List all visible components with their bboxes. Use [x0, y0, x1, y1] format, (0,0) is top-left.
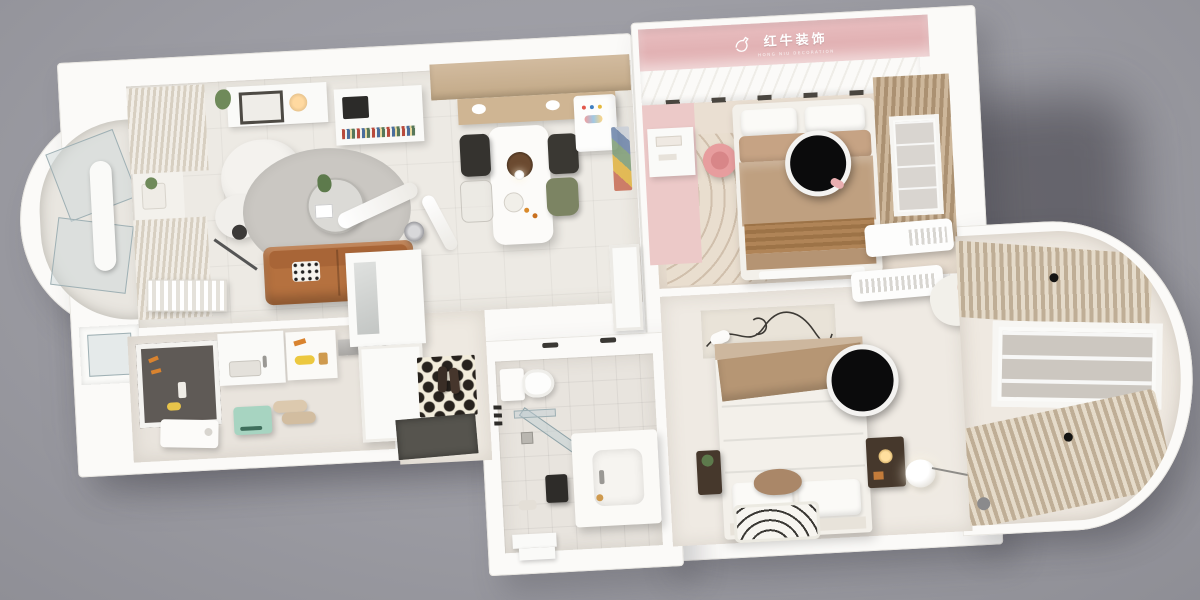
living-curtain-upper — [126, 84, 208, 174]
dining-wall-art — [611, 126, 632, 191]
green-chair — [546, 177, 580, 217]
bay-floor — [955, 225, 1188, 526]
fruit — [524, 208, 529, 213]
fridge-sticker — [584, 115, 602, 124]
heater-unit — [147, 280, 227, 312]
jar — [318, 352, 328, 364]
black-chair — [547, 133, 579, 175]
entry-dark-mat — [395, 413, 478, 460]
towel-roll — [281, 411, 316, 425]
scene-background: 红牛装饰 HONG NIU DECORATION — [0, 0, 1200, 600]
nightstand-left — [696, 450, 722, 495]
plant — [701, 454, 714, 467]
kids-window-frame — [889, 114, 944, 216]
ac-vents — [859, 273, 936, 294]
lemons — [167, 402, 181, 411]
black-chair — [459, 134, 491, 178]
vanity-faucet — [599, 470, 605, 484]
appliance-slot — [240, 426, 262, 431]
carrot — [151, 368, 162, 374]
dining-table — [488, 124, 554, 245]
kids-desk — [647, 127, 695, 177]
bidet-sprayer — [493, 403, 502, 425]
chair-seat — [710, 151, 729, 170]
desk-item — [658, 154, 676, 161]
step — [519, 547, 556, 561]
kitchen-window — [136, 340, 222, 428]
carrot — [148, 356, 159, 364]
bowl — [545, 100, 560, 111]
book — [315, 204, 334, 219]
bull-icon — [733, 36, 752, 55]
laptop — [342, 96, 369, 119]
toilet-tank — [499, 368, 525, 401]
kitchen-counter — [217, 331, 286, 386]
table-lamp-glow — [289, 93, 308, 112]
wall-shelf — [226, 82, 328, 127]
kids-pillow — [740, 107, 797, 136]
entry-console — [345, 249, 426, 347]
ac-vents — [908, 226, 947, 245]
shower-fixture — [545, 474, 568, 503]
book-spines — [342, 125, 416, 139]
shoe — [449, 367, 461, 394]
carrot — [293, 338, 306, 346]
fridge-magnet — [590, 105, 594, 109]
nightstand-lamp — [878, 449, 893, 464]
balcony-door-gap — [133, 172, 185, 221]
sliding-door-handle — [542, 342, 558, 348]
zebra-rug — [733, 501, 821, 543]
nightstand-right — [866, 436, 907, 488]
lips-pillow — [753, 468, 802, 496]
fridge-magnet — [598, 105, 602, 109]
ghost-chair — [460, 180, 494, 224]
entry-patterned-rug — [417, 355, 478, 418]
fruit — [532, 213, 537, 218]
mirror-panel — [354, 262, 380, 335]
floor-drain — [521, 432, 534, 445]
kids-pillow — [804, 104, 865, 133]
bottle — [178, 382, 187, 398]
logo-text: 红牛装饰 — [763, 32, 828, 50]
sliding-door-handle — [600, 337, 616, 343]
bay-curtain-upper — [955, 240, 1154, 330]
hanging-bookshelf — [334, 85, 425, 146]
fridge-magnet — [582, 105, 586, 109]
faucet — [262, 356, 267, 368]
vanity-counter — [571, 429, 662, 527]
desk-keyboard — [656, 136, 682, 147]
apartment-floorplan: 红牛装饰 HONG NIU DECORATION — [0, 0, 1200, 600]
pendant-lamp — [514, 170, 525, 181]
white-appliance — [160, 419, 218, 448]
balcony-lower-pane — [87, 333, 133, 377]
bowl — [472, 104, 487, 115]
door-leaf — [609, 244, 643, 331]
shoe — [438, 366, 447, 392]
nightstand-book — [873, 471, 883, 480]
appliance-dial — [204, 428, 212, 436]
duvet-seam — [723, 432, 863, 441]
kitchen-sink — [229, 360, 262, 378]
bananas — [295, 355, 315, 365]
dotted-pillow — [292, 261, 321, 282]
kids-window-glass — [895, 120, 938, 210]
kitchen-food-shelf — [285, 330, 337, 381]
bath-caddy — [518, 500, 536, 511]
picture-frame — [239, 90, 285, 124]
plate — [503, 192, 524, 213]
plant — [214, 89, 231, 110]
mint-appliance — [233, 405, 272, 435]
bay-window-glass — [1001, 331, 1152, 400]
